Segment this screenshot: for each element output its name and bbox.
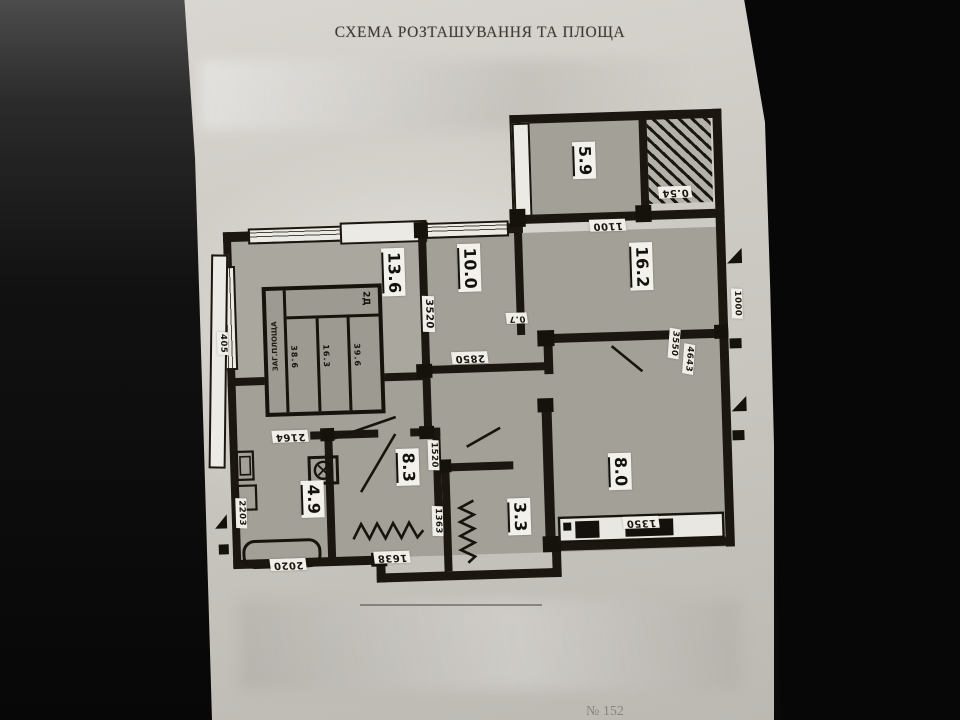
- dimension-label: 2020: [269, 558, 306, 571]
- floor-plan: 405: [214, 100, 765, 622]
- sink-icon: [237, 451, 254, 479]
- dimension-label: 1638: [373, 551, 410, 564]
- dimension-label: 1000: [731, 288, 742, 318]
- photo-background-left: [0, 0, 212, 720]
- stamp-cell: 39.6: [350, 316, 382, 410]
- room-area-label: 3.3: [507, 498, 531, 536]
- section-mark: [729, 338, 741, 348]
- stamp-table: ЗАГ.ПЛОЩА 2Д 38.6 16.3 39.6: [262, 283, 386, 417]
- zigzag-symbol: [353, 522, 423, 539]
- room-area-label: 8.3: [396, 448, 420, 486]
- door-swing: [332, 417, 397, 439]
- room-area-label: 8.0: [608, 453, 632, 491]
- section-mark: [727, 248, 742, 263]
- stamp-cell: 38.6: [287, 318, 322, 412]
- room-area-label: 5.9: [572, 142, 596, 180]
- dimension-label: 1520: [428, 440, 439, 470]
- door-swing: [359, 434, 397, 492]
- dimension-label: 3550: [668, 328, 681, 359]
- footer-note: № 152: [586, 704, 624, 720]
- section-mark: [219, 544, 229, 554]
- section-mark: [732, 430, 744, 440]
- dimension-label: 1350: [622, 516, 659, 529]
- page-title: СХЕМА РОЗТАШУВАННЯ ТА ПЛОЩА: [240, 24, 720, 42]
- stamp-cell: 16.3: [318, 317, 353, 411]
- dimension-label: 2164: [271, 430, 308, 443]
- dimension-label: 0.7: [506, 313, 528, 324]
- section-mark: [215, 514, 227, 528]
- section-mark: [731, 396, 746, 411]
- dimension-label: 2203: [236, 498, 247, 528]
- room-area-label: 13.6: [381, 248, 405, 297]
- door-swing: [466, 428, 501, 447]
- stamp-header-cell: 2Д: [286, 287, 379, 319]
- door-swing: [612, 345, 643, 372]
- dimension-label: 3520: [422, 296, 435, 332]
- dimension-label: 1363: [432, 506, 443, 536]
- dimension-label: 1100: [589, 219, 626, 232]
- pencil-line: [360, 604, 542, 606]
- room-area-label: 16.2: [629, 242, 653, 291]
- dimension-label: 4643: [683, 343, 696, 374]
- zigzag-symbol: [459, 501, 475, 563]
- room-area-label: 4.9: [301, 480, 325, 518]
- room-area-label: 10.0: [457, 243, 481, 292]
- stove-icon: [575, 521, 600, 539]
- loggia-area-label: 0.54: [658, 186, 692, 199]
- dimension-label: 2850: [451, 351, 488, 364]
- photo-of-floor-plan: СХЕМА РОЗТАШУВАННЯ ТА ПЛОЩА 405: [0, 0, 960, 720]
